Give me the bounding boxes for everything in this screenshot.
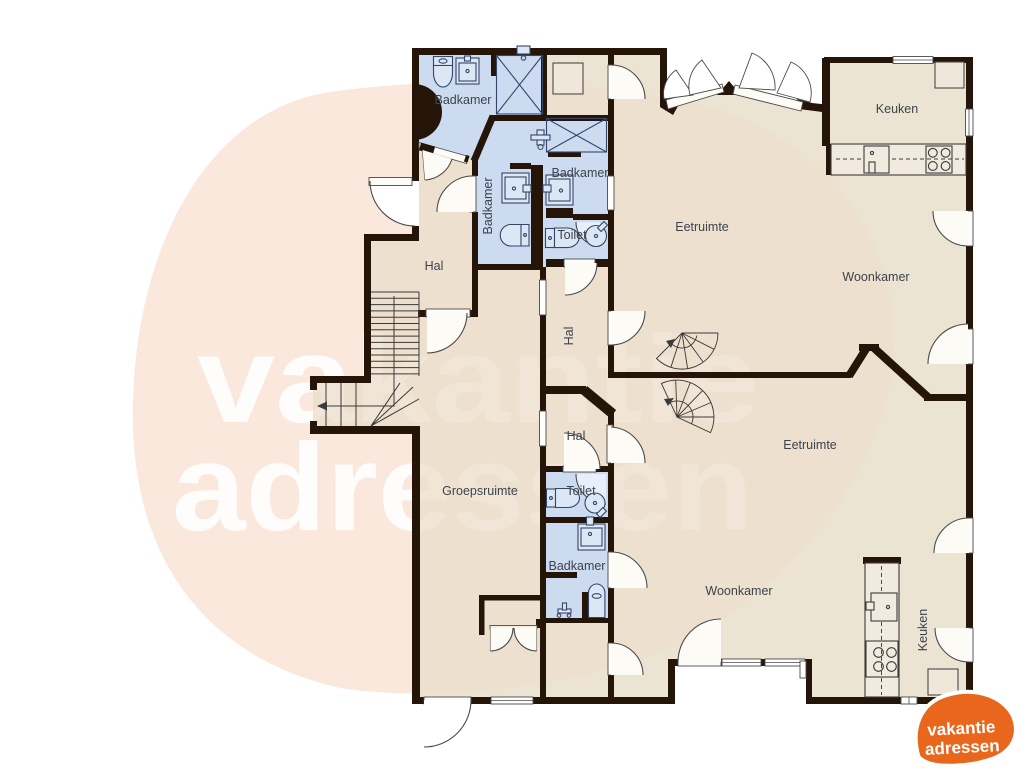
svg-text:Badkamer: Badkamer: [435, 93, 492, 107]
svg-text:Badkamer: Badkamer: [552, 166, 609, 180]
svg-text:Badkamer: Badkamer: [481, 178, 495, 235]
svg-text:Hal: Hal: [567, 429, 586, 443]
svg-text:Toilet: Toilet: [557, 228, 587, 242]
svg-text:Eetruimte: Eetruimte: [675, 220, 729, 234]
svg-text:Woonkamer: Woonkamer: [842, 270, 909, 284]
svg-text:Keuken: Keuken: [916, 609, 930, 651]
svg-text:Toilet: Toilet: [566, 484, 596, 498]
svg-text:Woonkamer: Woonkamer: [705, 584, 772, 598]
svg-text:Keuken: Keuken: [876, 102, 918, 116]
svg-text:Hal: Hal: [425, 259, 444, 273]
svg-text:Groepsruimte: Groepsruimte: [442, 484, 518, 498]
svg-text:Badkamer: Badkamer: [549, 559, 606, 573]
svg-text:adressen: adressen: [925, 736, 1001, 759]
svg-text:Hal: Hal: [562, 327, 576, 346]
svg-text:Eetruimte: Eetruimte: [783, 438, 837, 452]
